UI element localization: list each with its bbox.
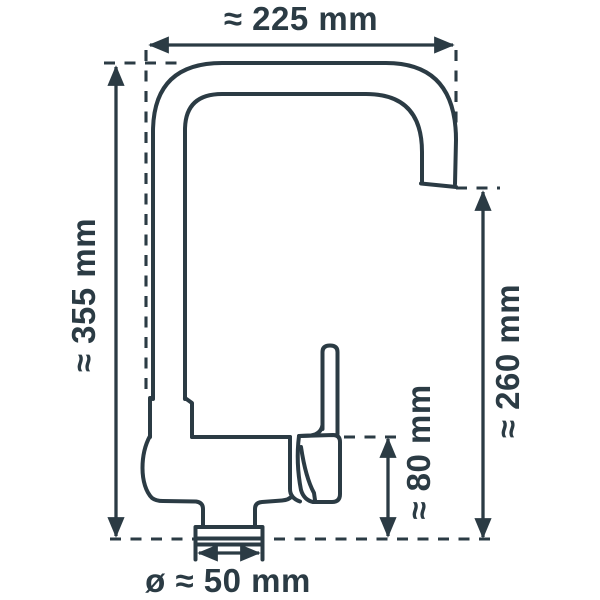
extension-lines xyxy=(104,50,500,539)
body-right-neck xyxy=(255,496,292,527)
diagram-canvas: ≈ 225 mm ≈ 355 mm ≈ 260 mm ≈ 80 mm ø ≈ 5… xyxy=(0,0,600,600)
label-base-diameter: ø ≈ 50 mm xyxy=(145,562,311,599)
label-spout-height: ≈ 260 mm xyxy=(489,284,526,438)
label-body-height: ≈ 80 mm xyxy=(400,384,437,519)
body-left-bulge xyxy=(143,436,204,527)
dimension-labels: ≈ 225 mm ≈ 355 mm ≈ 260 mm ≈ 80 mm ø ≈ 5… xyxy=(65,0,526,599)
label-overall-height: ≈ 355 mm xyxy=(65,218,102,372)
handle-lever-flare xyxy=(299,425,323,436)
handle-lever-stem xyxy=(323,346,338,435)
faucet-dimension-diagram: ≈ 225 mm ≈ 355 mm ≈ 260 mm ≈ 80 mm ø ≈ 5… xyxy=(0,0,600,600)
spout-inner-contour xyxy=(185,94,422,399)
pipe-collar xyxy=(150,398,192,437)
label-top-width: ≈ 225 mm xyxy=(224,0,378,37)
spout-outlet-edge xyxy=(421,184,456,188)
